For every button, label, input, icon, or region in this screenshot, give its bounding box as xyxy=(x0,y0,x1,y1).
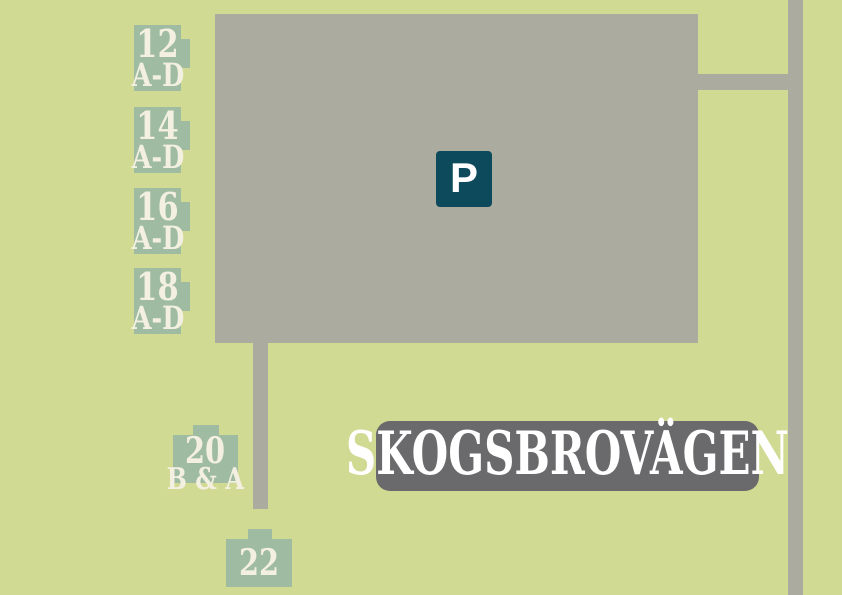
street-sign: SKOGSBROVÄGEN xyxy=(376,421,759,491)
parking-sign-label: P xyxy=(450,157,478,202)
building-22-extension xyxy=(248,529,272,539)
building-16-label: 16 A-D xyxy=(134,188,181,254)
road-connector-top xyxy=(694,74,803,90)
building-20-units: B & A xyxy=(167,466,244,494)
parking-lot: P xyxy=(215,14,698,343)
building-22-number: 22 xyxy=(239,547,279,579)
building-18-label: 18 A-D xyxy=(134,268,181,334)
building-16: 16 A-D xyxy=(134,188,181,254)
building-22: 22 xyxy=(226,539,292,587)
building-12: 12 A-D xyxy=(134,25,181,91)
building-12-units: A-D xyxy=(131,60,184,90)
building-14: 14 A-D xyxy=(134,107,181,173)
site-map: P 12 A-D 14 A-D 16 A-D 18 A-D 20 xyxy=(0,0,842,595)
parking-sign: P xyxy=(436,151,492,207)
road-south xyxy=(253,340,268,509)
building-20-label: 20 B & A xyxy=(173,435,238,483)
building-22-label: 22 xyxy=(226,539,292,587)
building-18-units: A-D xyxy=(131,303,184,333)
building-18: 18 A-D xyxy=(134,268,181,334)
street-name: SKOGSBROVÄGEN xyxy=(346,424,789,488)
building-14-label: 14 A-D xyxy=(134,107,181,173)
building-20: 20 B & A xyxy=(173,435,238,483)
building-16-units: A-D xyxy=(131,223,184,253)
building-12-label: 12 A-D xyxy=(134,25,181,91)
building-14-units: A-D xyxy=(131,142,184,172)
